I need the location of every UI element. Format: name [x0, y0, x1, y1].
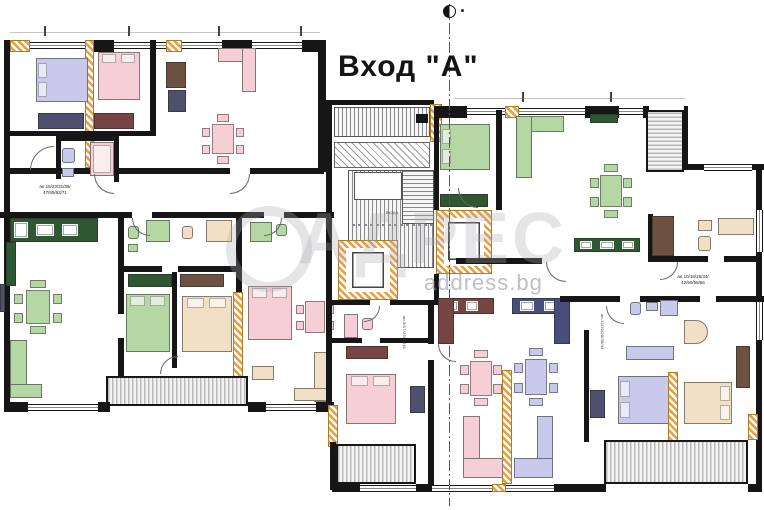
apartment-number-vertical: ап.12/20/28/36/44: [600, 314, 605, 350]
wall: [332, 484, 360, 492]
appliance: [62, 224, 78, 236]
bed: [126, 294, 170, 352]
chair: [474, 398, 488, 406]
chair: [217, 114, 229, 122]
dining-table: [14, 280, 62, 334]
hatched-wall: [668, 372, 678, 442]
window: [360, 485, 416, 492]
bathtub: [718, 218, 754, 235]
balcony: [336, 444, 416, 484]
door-arc: [438, 344, 456, 362]
wall: [114, 136, 119, 182]
dining-table: [460, 350, 502, 406]
crib: [684, 320, 708, 344]
door-arc: [94, 174, 114, 194]
stove: [600, 241, 614, 249]
chair: [549, 363, 558, 373]
dimension-tick: [44, 26, 46, 36]
pillow: [620, 381, 630, 397]
hatched-wall: [328, 405, 338, 447]
chair: [236, 128, 244, 137]
chair: [460, 384, 469, 394]
kitchen-sink: [14, 222, 28, 238]
door-arc: [364, 306, 380, 322]
chair: [296, 305, 304, 314]
apartment-number: ап.15/23/31/39/ 47/55/63/71: [16, 184, 94, 196]
dimension-tick: [128, 26, 130, 36]
bed: [346, 374, 396, 424]
sofa: [537, 416, 553, 464]
bed: [440, 124, 490, 170]
wall: [172, 272, 177, 368]
wall: [439, 106, 467, 118]
wall: [648, 256, 708, 262]
window: [266, 404, 316, 411]
wall: [584, 330, 589, 442]
pillow: [38, 82, 47, 97]
hatched-column: [166, 40, 182, 52]
hatched-wall: [233, 292, 243, 388]
pillow: [209, 298, 226, 308]
chair: [529, 348, 543, 356]
pillow: [121, 54, 135, 63]
window: [30, 42, 88, 49]
table-top: [470, 361, 492, 396]
chair: [296, 321, 304, 330]
door-arc: [30, 146, 54, 170]
chair: [514, 383, 523, 393]
wall: [684, 106, 688, 170]
wall: [4, 402, 28, 412]
shower: [660, 300, 678, 316]
sofa: [463, 416, 480, 464]
pillow: [720, 386, 730, 401]
chair: [460, 365, 469, 375]
wall: [496, 110, 502, 210]
toilet: [698, 236, 711, 251]
sofa: [463, 458, 503, 478]
sink: [698, 220, 712, 231]
chair: [493, 365, 502, 375]
kitchen-counter: [554, 298, 570, 344]
dining-table: [590, 164, 632, 218]
table-top: [305, 301, 325, 333]
chair: [236, 145, 244, 154]
wardrobe: [94, 113, 134, 129]
door-arc: [160, 356, 178, 374]
dining-table: [202, 114, 244, 164]
wall: [416, 484, 432, 492]
toilet: [62, 148, 75, 163]
chair: [623, 178, 632, 188]
chair: [53, 294, 62, 304]
hatched-wall: [502, 370, 512, 484]
pillow: [373, 376, 390, 386]
pillow: [187, 298, 204, 308]
kitchen-sink: [466, 301, 478, 311]
wall: [428, 304, 434, 344]
hatched-column: [492, 484, 506, 492]
chair: [529, 398, 543, 406]
chair: [30, 280, 46, 288]
chair: [474, 350, 488, 358]
pillow: [130, 296, 145, 306]
wall: [434, 106, 439, 210]
kitchen-counter: [10, 218, 98, 242]
north-marker-icon: [443, 5, 456, 18]
shelf: [590, 114, 618, 123]
bathtub: [90, 142, 114, 176]
window: [252, 42, 302, 49]
window: [756, 300, 763, 340]
pillow: [102, 54, 116, 63]
chair: [623, 197, 632, 207]
pillow: [38, 63, 47, 78]
sofa: [242, 48, 256, 92]
apartment-number-vertical: ап.9/17/25/33/41: [402, 316, 407, 349]
sink: [62, 168, 74, 177]
stove: [36, 224, 54, 236]
kitchen-counter: [438, 298, 454, 344]
table-top: [600, 175, 622, 207]
window: [506, 485, 554, 492]
radiator: [0, 284, 5, 312]
wardrobe: [346, 346, 388, 359]
wardrobe: [590, 390, 605, 418]
wall: [330, 300, 370, 305]
sofa: [294, 388, 329, 401]
wall: [98, 402, 110, 412]
wall: [560, 296, 620, 302]
dimension-line: [10, 32, 320, 33]
dimension-tick: [218, 26, 220, 36]
chair: [549, 383, 558, 393]
chair: [14, 294, 23, 304]
watermark-site-url: address.bg: [424, 270, 543, 296]
dimension-tick: [522, 92, 524, 102]
toilet: [182, 226, 193, 239]
sofa: [516, 116, 532, 178]
wall: [248, 402, 266, 412]
toilet: [630, 302, 641, 315]
wall: [724, 256, 762, 262]
wardrobe: [626, 346, 674, 360]
bed: [684, 382, 732, 424]
kitchen-sink: [580, 241, 592, 249]
stair-flight: [334, 142, 430, 168]
wall: [178, 266, 236, 272]
tub-inner: [93, 145, 111, 173]
dimension-tick: [610, 92, 612, 102]
chair: [14, 313, 23, 323]
dimension-line: [455, 98, 685, 99]
bed: [36, 58, 88, 102]
window: [756, 210, 763, 252]
bed: [248, 286, 292, 340]
pillow: [150, 296, 165, 306]
wardrobe: [736, 346, 750, 388]
wall: [56, 136, 118, 141]
hatched-column: [748, 414, 758, 440]
stair-landing: [354, 172, 402, 200]
table-top: [212, 124, 234, 154]
wall: [332, 338, 362, 343]
chair: [53, 313, 62, 323]
window: [432, 485, 492, 492]
wall: [122, 266, 162, 272]
wall: [112, 168, 230, 174]
wardrobe: [410, 386, 425, 413]
sink: [646, 302, 658, 311]
sofa: [10, 384, 42, 398]
chair: [202, 128, 210, 137]
chair: [217, 156, 229, 164]
balcony: [646, 110, 684, 172]
wall: [428, 360, 434, 486]
pillow: [720, 405, 730, 420]
wardrobe: [166, 62, 186, 88]
wardrobe: [168, 90, 186, 112]
wall: [554, 484, 606, 492]
chair: [590, 178, 599, 188]
wardrobe: [38, 113, 84, 129]
balcony: [604, 440, 748, 484]
wardrobe: [128, 274, 172, 287]
chair: [590, 197, 599, 207]
chair: [202, 145, 210, 154]
wall: [250, 168, 324, 174]
dimension-tick: [300, 26, 302, 36]
window: [704, 164, 752, 171]
bathroom-floor: [652, 216, 674, 256]
table-top: [26, 290, 50, 324]
wall: [716, 296, 764, 302]
pillow: [351, 376, 368, 386]
door-arc: [230, 174, 250, 194]
north-marker-dot: [461, 9, 464, 12]
dining-table: [514, 348, 558, 406]
window: [182, 42, 222, 49]
chair: [514, 363, 523, 373]
window: [114, 42, 166, 49]
wall: [330, 100, 434, 105]
window: [619, 108, 643, 115]
page-title: Вход "А": [338, 50, 479, 84]
chair: [604, 164, 618, 172]
balcony: [106, 376, 248, 406]
entrance-arrow-icon: [416, 114, 428, 123]
stove: [520, 301, 534, 311]
wardrobe: [180, 274, 224, 287]
door-arc: [606, 306, 624, 324]
bed: [182, 296, 232, 352]
wall: [318, 40, 326, 172]
wall: [150, 40, 156, 136]
chair: [493, 384, 502, 394]
window: [519, 108, 585, 115]
table-top: [525, 359, 547, 395]
armchair: [252, 366, 274, 380]
pillow: [620, 402, 630, 418]
appliance: [622, 241, 634, 249]
sink: [128, 244, 138, 252]
chair: [604, 210, 618, 218]
chair: [30, 326, 46, 334]
bed: [98, 52, 140, 100]
hatched-column: [10, 40, 30, 52]
window: [28, 404, 98, 411]
watermark-logo-text: АДРЕС: [298, 198, 567, 280]
bathtub: [344, 314, 358, 338]
sofa: [514, 458, 553, 478]
kitchen-counter: [574, 238, 640, 252]
